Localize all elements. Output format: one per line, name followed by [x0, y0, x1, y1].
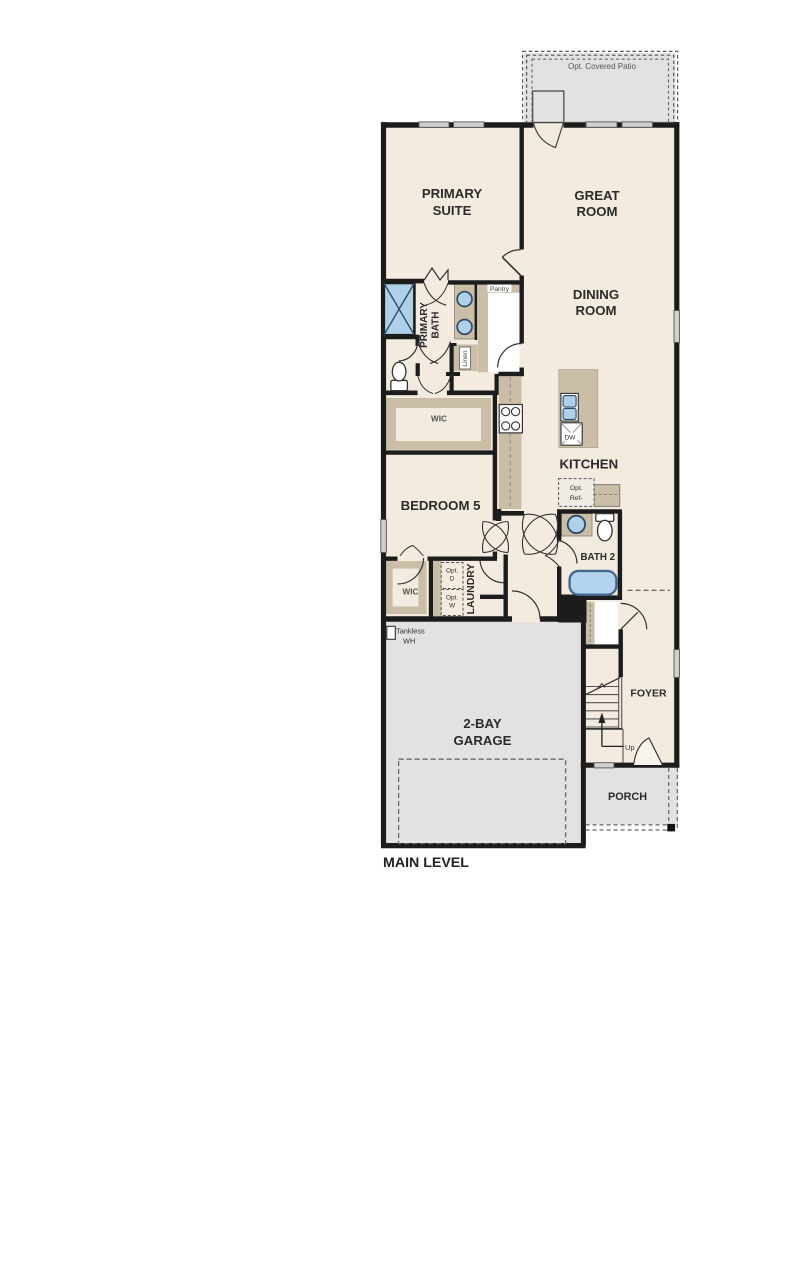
- svg-text:SUITE: SUITE: [433, 203, 472, 218]
- svg-text:Linen: Linen: [462, 350, 469, 366]
- svg-text:Opt.: Opt.: [446, 568, 458, 575]
- svg-text:PRIMARY: PRIMARY: [422, 186, 483, 201]
- svg-text:WH: WH: [403, 637, 415, 646]
- svg-text:Tankless: Tankless: [396, 627, 425, 636]
- svg-text:Opt.: Opt.: [446, 595, 458, 602]
- svg-text:2-BAY: 2-BAY: [463, 716, 502, 731]
- svg-text:WIC: WIC: [431, 415, 447, 424]
- svg-text:Ref-: Ref-: [570, 495, 583, 502]
- svg-text:BATH 2: BATH 2: [580, 552, 615, 563]
- svg-text:BATH: BATH: [431, 311, 442, 338]
- svg-text:ROOM: ROOM: [576, 204, 617, 219]
- svg-text:KITCHEN: KITCHEN: [559, 457, 618, 472]
- svg-text:FOYER: FOYER: [630, 688, 667, 700]
- svg-text:MAIN LEVEL: MAIN LEVEL: [383, 855, 469, 871]
- svg-text:Pantry: Pantry: [490, 286, 510, 293]
- svg-text:DINING: DINING: [573, 287, 619, 302]
- svg-text:Opt. Covered Patio: Opt. Covered Patio: [568, 62, 637, 71]
- svg-text:D: D: [450, 576, 455, 583]
- svg-text:BEDROOM 5: BEDROOM 5: [401, 498, 481, 513]
- svg-text:WIC: WIC: [403, 588, 419, 597]
- svg-text:Up: Up: [625, 743, 635, 752]
- svg-text:Opt.: Opt.: [570, 485, 583, 492]
- svg-text:PORCH: PORCH: [608, 791, 647, 803]
- svg-text:ROOM: ROOM: [575, 303, 616, 318]
- svg-text:DW: DW: [565, 435, 577, 442]
- svg-text:GREAT: GREAT: [574, 188, 619, 203]
- svg-text:LAUNDRY: LAUNDRY: [465, 564, 477, 615]
- svg-text:GARAGE: GARAGE: [454, 733, 512, 748]
- svg-text:PRIMARY: PRIMARY: [419, 302, 430, 348]
- svg-text:W: W: [449, 603, 456, 610]
